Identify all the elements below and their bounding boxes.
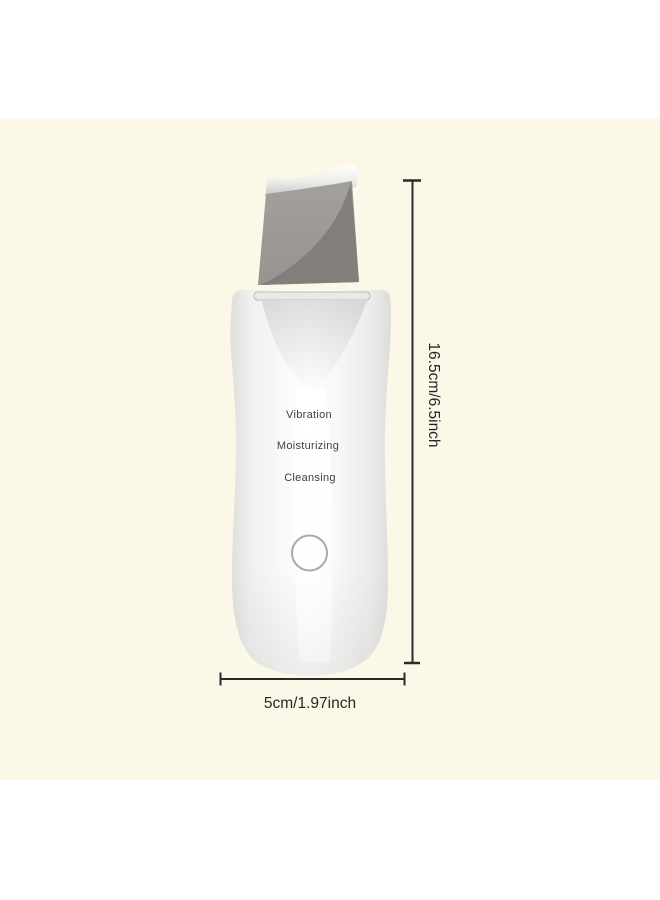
height-dimension-label: 16.5cm/6.5inch: [424, 342, 442, 447]
product-image: Vibration Moisturizing Cleansing 16.5cm/…: [0, 0, 660, 900]
device-label-moisturizing: Moisturizing: [277, 440, 339, 452]
body-highlight-column: [294, 390, 333, 662]
device-label-vibration: Vibration: [286, 409, 332, 421]
device-label-cleansing: Cleansing: [284, 472, 336, 484]
width-dimension-label: 5cm/1.97inch: [264, 695, 356, 713]
blade-slot: [254, 292, 370, 300]
